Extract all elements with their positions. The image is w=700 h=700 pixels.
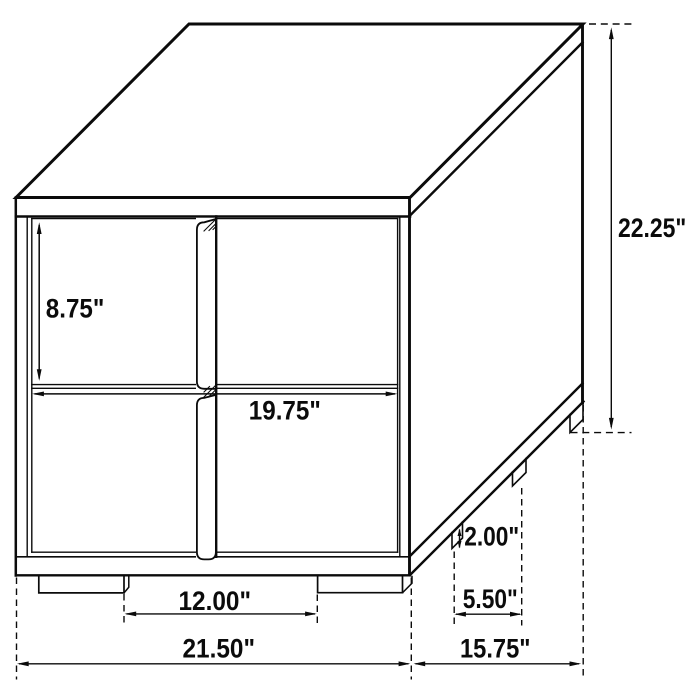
- svg-text:8.75": 8.75": [46, 293, 105, 323]
- svg-text:5.50": 5.50": [463, 584, 518, 614]
- svg-text:21.50": 21.50": [183, 633, 256, 663]
- svg-text:2.00": 2.00": [464, 522, 519, 552]
- svg-text:15.75": 15.75": [460, 634, 531, 664]
- svg-text:19.75": 19.75": [249, 395, 321, 425]
- svg-text:22.25": 22.25": [618, 213, 686, 243]
- svg-text:12.00": 12.00": [179, 586, 252, 616]
